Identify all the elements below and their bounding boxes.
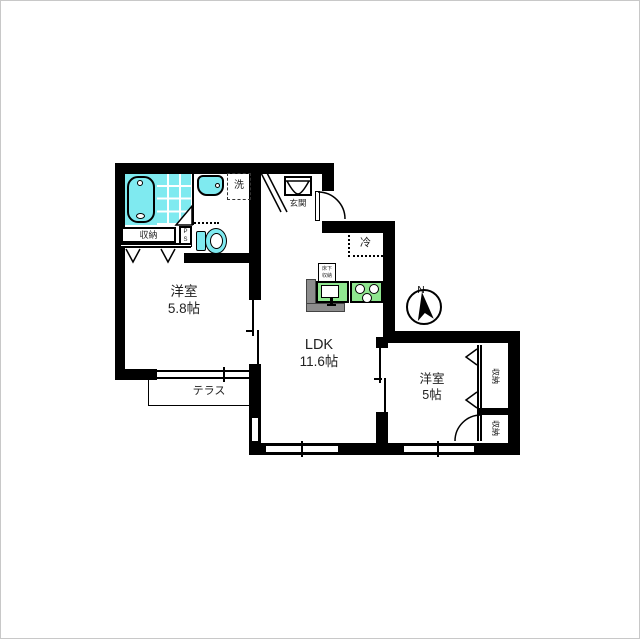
kitchen-counter-edge-h [306,303,345,312]
underfloor-storage: 床下 収納 [318,263,336,283]
room-label-western1: 洋室 5.8帖 [125,284,243,318]
wall-toilet-bottom [184,253,261,263]
bathtub-drain-icon [136,213,145,219]
shoe-cabinet [284,176,312,196]
terrace-label: テラス [179,385,239,399]
room-label-ldk: LDK 11.6帖 [254,336,384,371]
stove-burner-icon [369,284,379,294]
entrance-label: 玄関 [278,198,318,209]
window-ldk-west [250,418,260,441]
closet-right-top-front [477,345,482,408]
sliding-door-tick [374,378,382,380]
wall-western2-right [508,331,520,455]
room-size: 5.8帖 [125,301,243,318]
closet-bifold-icon [161,249,175,262]
refrigerator-label: 冷 [350,237,381,251]
room-name: 洋室 [125,284,243,301]
closet-right-top-label: 収納 [489,361,501,391]
room-name: LDK [254,336,384,354]
wall-left [115,163,125,380]
sliding-door-tick [246,330,254,332]
bathtub-faucet-icon [137,180,143,186]
entrance-door-arc [318,192,345,219]
room-size: 11.6帖 [254,354,384,371]
closet-right-bottom-front [477,415,482,441]
hall-closet: 収納 [121,227,176,243]
wall-bath-divider [192,174,194,225]
toilet-overhead-shelf [191,222,219,226]
wall-ldk-east-upper [383,221,395,337]
refrigerator-space: 冷 [348,226,383,257]
floor-plan: 洗 収納 P S 玄関 冷 床下 収納 テラス 収納 収納 洋室 [0,0,640,639]
closet-bifold-icon [466,349,477,365]
wall-top [115,163,334,174]
north-label: N [417,285,424,296]
window-tick [437,441,439,457]
underfloor-storage-line2: 収納 [319,273,335,279]
laundry-space: 洗 [227,173,251,200]
window-western2-south [404,444,474,454]
bathroom-tile-floor [157,174,192,225]
closet-right-bottom-label: 収納 [489,413,501,443]
window-western1-terrace [157,370,249,379]
wall-entrance-right [322,163,334,191]
window-tick [301,441,303,457]
laundry-label: 洗 [228,180,250,193]
wall-western2-top [383,331,520,343]
stove-burner-icon [355,284,365,294]
terrace: テラス [148,380,252,406]
washbasin-drain-icon [215,183,220,188]
underfloor-storage-line1: 床下 [319,266,335,272]
closet-bifold-icon [126,249,140,262]
hall-closet-front [121,243,191,248]
hall-closet-label: 収納 [123,230,174,241]
toilet-seat [210,233,223,249]
sliding-door-panel [384,378,386,412]
room-size: 5帖 [388,388,476,404]
kitchen-faucet-icon [327,304,336,306]
entrance-door-leaf [315,191,320,221]
room-name: 洋室 [388,372,476,388]
wall-ldk-western2-divider-b [376,412,388,443]
north-compass-icon: N [407,285,441,324]
stove-burner-icon [362,293,372,303]
wall-western1-bottom [115,369,157,380]
room-label-western2: 洋室 5帖 [388,372,476,403]
